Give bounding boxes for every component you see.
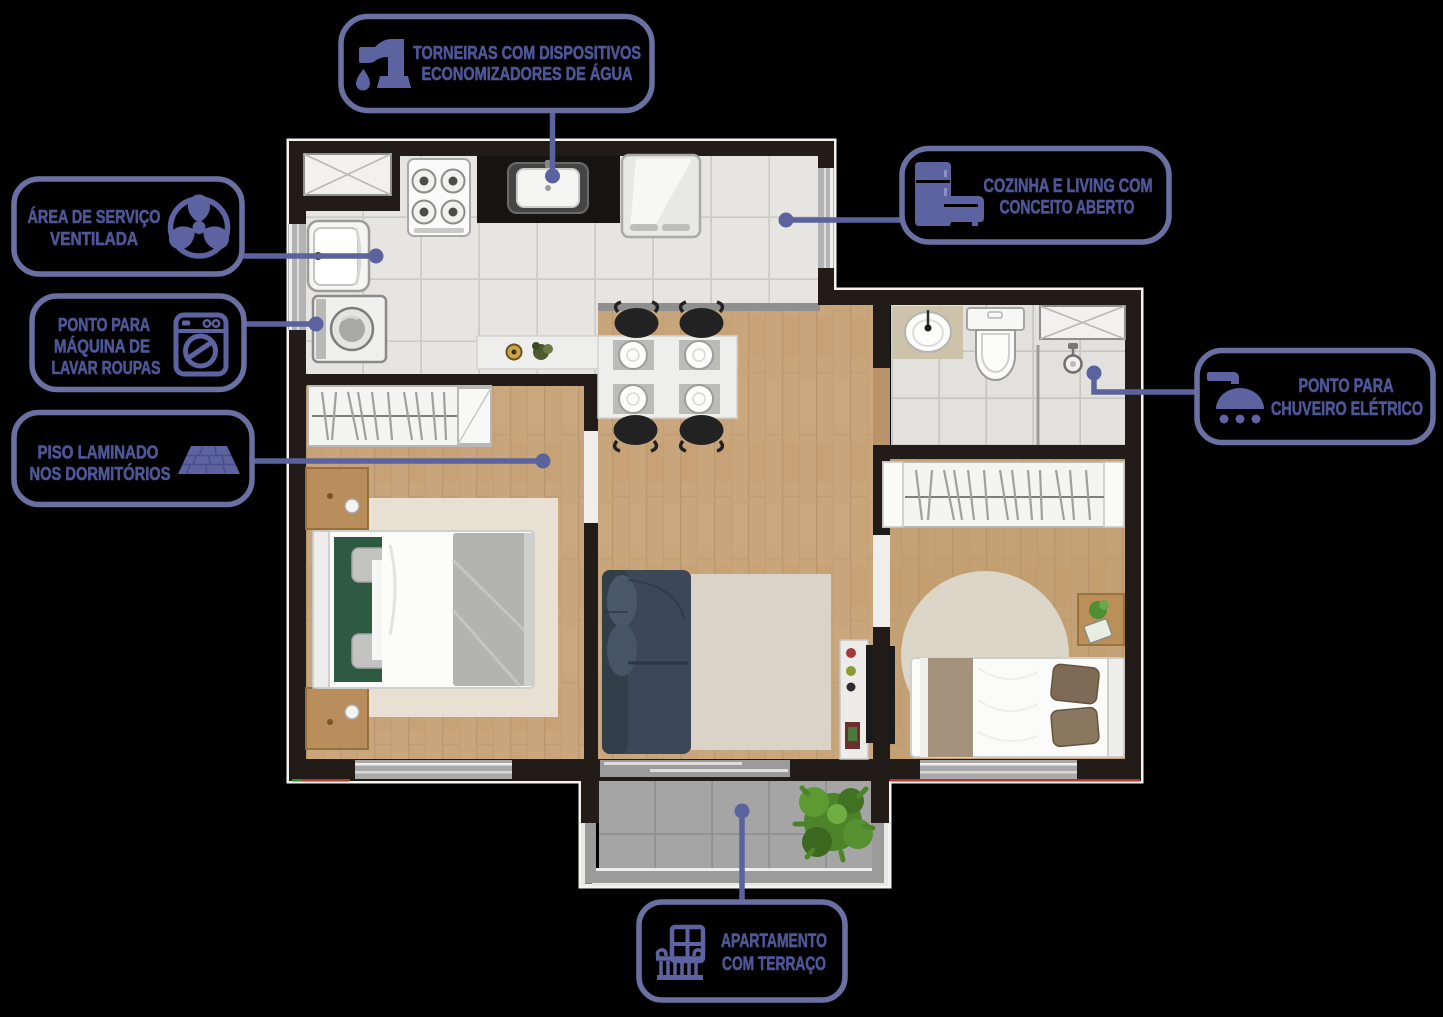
svg-text:NOS DORMITÓRIOS: NOS DORMITÓRIOS xyxy=(30,463,171,484)
svg-text:PONTO PARA: PONTO PARA xyxy=(1299,376,1394,397)
svg-text:CHUVEIRO ELÉTRICO: CHUVEIRO ELÉTRICO xyxy=(1271,398,1423,420)
svg-text:APARTAMENTO: APARTAMENTO xyxy=(721,931,827,952)
svg-text:PONTO PARA: PONTO PARA xyxy=(58,315,150,335)
svg-text:COZINHA E LIVING COM: COZINHA E LIVING COM xyxy=(984,176,1153,197)
svg-text:ECONOMIZADORES DE ÁGUA: ECONOMIZADORES DE ÁGUA xyxy=(422,63,633,84)
svg-text:VENTILADA: VENTILADA xyxy=(50,229,138,249)
svg-text:LAVAR ROUPAS: LAVAR ROUPAS xyxy=(52,358,161,378)
svg-text:CONCEITO ABERTO: CONCEITO ABERTO xyxy=(1000,198,1135,219)
svg-text:ÁREA DE SERVIÇO: ÁREA DE SERVIÇO xyxy=(28,206,161,227)
svg-text:TORNEIRAS COM DISPOSITIVOS: TORNEIRAS COM DISPOSITIVOS xyxy=(413,43,641,63)
svg-text:PISO LAMINADO: PISO LAMINADO xyxy=(38,443,159,463)
svg-text:MÁQUINA DE: MÁQUINA DE xyxy=(54,336,150,357)
svg-text:COM TERRAÇO: COM TERRAÇO xyxy=(722,954,826,975)
